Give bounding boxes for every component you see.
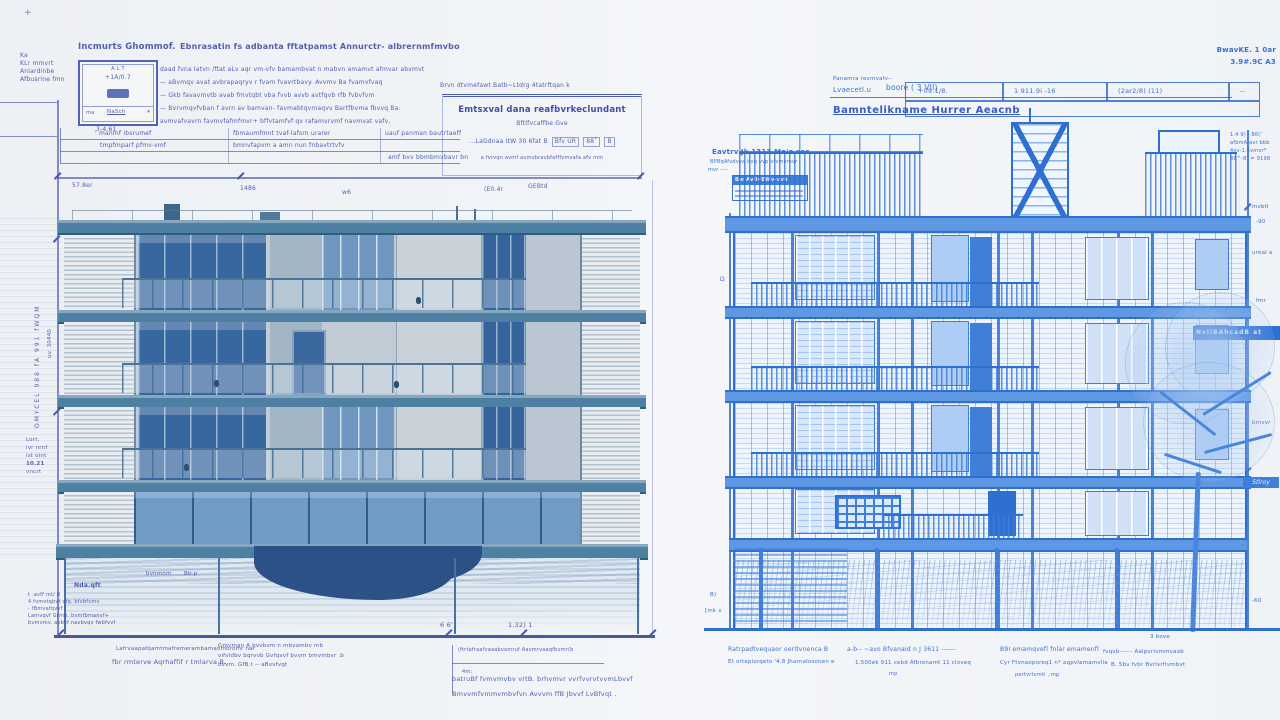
base-note-line: bvmvmv. avbvf navbvqv fwbfvvf <box>28 620 115 627</box>
footnote-cluster: Ratrpadtvequaor oerltvnenca B Et ortepio… <box>728 643 835 669</box>
blueprint-sheet: + Ka KLr mmvrt Aniardinbe Afbusrine fmn … <box>0 0 1280 720</box>
legend-ma: ma <box>86 110 94 117</box>
balcony-railing <box>751 282 1039 306</box>
rooftop-railing <box>739 152 923 217</box>
balcony-railing <box>122 448 526 478</box>
ground-line <box>54 635 655 638</box>
band-separator <box>1002 83 1004 100</box>
base-pier-line <box>637 558 639 634</box>
ground-hatch <box>733 560 1244 626</box>
note-line: daad fvna latvn /ftat aLv aqr vm-vfv bam… <box>160 63 460 76</box>
spec-cell: Bfv UR <box>552 137 579 147</box>
left-heading-main: Ebnrasatin fs adbanta fftatpamst Annurct… <box>180 42 460 52</box>
side-tick-label: ureal a <box>1252 250 1272 257</box>
footnote: batruBf fvmvmvbv vrtB. brhvmvr vvrfvvrvt… <box>452 675 633 683</box>
window <box>1195 239 1229 290</box>
band-separator <box>1106 83 1108 100</box>
spec-cell: B <box>604 137 614 147</box>
legend-arrow-icon: ▾ <box>147 109 150 116</box>
left-dimension-line <box>729 213 731 630</box>
rooftop-antenna <box>1029 108 1031 122</box>
band-cell: -- <box>1240 87 1245 95</box>
dim-label: GEBtd <box>528 183 548 191</box>
side-tick-label: mvbtl <box>1252 204 1269 211</box>
ground-line <box>704 628 1280 631</box>
spec-cell: 88˚ <box>583 137 600 147</box>
spec-value-row: ...LaGdnaa ItW 30 6fat B Bfv UR 88˚ B <box>443 137 641 147</box>
right-drawing-title: Bamntelikname Hurrer Aeacnb <box>833 104 1020 117</box>
balcony-object <box>184 464 189 471</box>
base-tag: Bb.p <box>184 571 197 578</box>
legend-nasch: NaSch <box>107 109 126 116</box>
footnote-line: B9I emamqvefl fnlar emamenfl <box>1000 643 1108 657</box>
band-cell: 1 911.9i -16 <box>1014 87 1056 95</box>
roof-slab <box>58 220 646 235</box>
footnote-rule <box>452 663 604 664</box>
floor-2 <box>64 407 640 480</box>
table-cell: fbmaumfmnt tvaf-lafsrn urarer <box>233 130 331 138</box>
base-note-line: t .avff mt/ B <box>28 592 115 599</box>
balcony-object <box>394 381 399 388</box>
spec-subtitle: Bftlfvcaffbe Gve <box>443 120 641 128</box>
ground-floor <box>64 492 640 544</box>
footnote-line: a-b-- ~avo Bfvanaid n J 3611 ------ <box>847 643 971 657</box>
leader-line <box>0 136 57 137</box>
footnote-block: Gmvman A bvvbvm n mbvambv mb vifvldbv bq… <box>218 642 344 671</box>
footnote: (ftrtafraafvaaabvamruf Aavmrvaaqfbvmr(b <box>458 647 574 654</box>
corner-note-line: Ka <box>20 52 28 60</box>
louver-panel <box>580 235 640 310</box>
footnote-line: Ratrpadtvequaor oerltvnenca B <box>728 643 835 656</box>
footnote-line: Et ortepiorqeto '4.8 Jharnalosonen e <box>728 656 835 669</box>
balcony-railing <box>883 514 1023 538</box>
legend-value: +1A/0.7 <box>83 74 153 82</box>
footnote-line: Gmvman A bvvbvm n mbvambv mb <box>218 642 344 652</box>
register-mark: + <box>24 8 32 20</box>
footnote-line: mp <box>889 670 971 679</box>
base-label: Nda.qft <box>74 582 101 590</box>
leader-line <box>0 102 57 103</box>
side-tick-label: -90 <box>1256 219 1266 226</box>
rooftop-pergola <box>739 134 923 152</box>
balcony-object <box>416 297 421 304</box>
table-rule <box>60 139 460 140</box>
balcony-railing <box>751 452 1039 476</box>
band-rule <box>906 100 1259 102</box>
table-separator <box>380 128 381 163</box>
window-grid <box>1085 237 1149 300</box>
rooftop-railing <box>1145 152 1237 217</box>
spec-fineprint: a fvrvqn avmf avmvbravbfafffvmvafa afv m… <box>443 155 641 162</box>
dim-label: 57.8er <box>72 182 93 190</box>
spec-title: Emtsxval dana reafbvrkeclundant <box>443 105 641 116</box>
band-separator <box>1228 83 1230 100</box>
roof-cabin <box>1158 130 1220 154</box>
footnote-line: 1.500ek 911 cebd Afbronamt 11 cloveq <box>855 657 971 670</box>
base-note-line: - fBmvafqvvf t <box>28 606 115 613</box>
footnote: Bmvvmfvmmvmbvfvn Avvvm ffB Jbvvf LvBfvqt… <box>452 690 617 698</box>
footnote-cluster: a-b-- ~avo Bfvanaid n J 3611 ------ 1.50… <box>847 643 971 679</box>
footnote-cluster: B9I emamqvefl fnlar emamenfl Cyr Ftvnaop… <box>1000 643 1108 681</box>
band-cell: (2ar2/8) (11) <box>1118 87 1162 95</box>
corner-note-line: Afbusrine fmn <box>20 76 65 84</box>
band-cell: +09.1/8. <box>918 87 948 95</box>
footnote-cluster: fvqvb------ Aalpvrlvmmvaab B. 5bv fvbr B… <box>1103 646 1185 672</box>
table-rule <box>60 163 460 164</box>
dim-label: 6 6' <box>440 621 453 629</box>
legend-bottom-strip: ma NaSch ▾ <box>83 106 153 121</box>
base-pier-line <box>454 558 456 634</box>
base-pier-line <box>218 558 220 634</box>
wall-panel <box>526 235 582 310</box>
sheet-number: BwavKE. 1 0ar <box>1196 46 1276 55</box>
stair-tower <box>1011 122 1069 220</box>
footnote: fbr rmterve Aqrhaffif r tmlarva B. <box>112 658 226 666</box>
footnote-line: Cyr Ftvnaoporeq1 n* aqpvlamamvlia <box>1000 657 1108 670</box>
small-mark: w6 <box>342 189 351 197</box>
backdrop-stripes <box>0 218 62 558</box>
table-border <box>60 128 61 163</box>
legend-box-inner: A L T +1A/0.7 ma NaSch ▾ <box>82 64 154 122</box>
footnote-leader <box>452 645 453 695</box>
table-cell: ' manmf ibsrumef <box>95 130 151 138</box>
dim-label: (E0.4r <box>484 186 503 194</box>
legend-box: A L T +1A/0.7 ma NaSch ▾ <box>78 60 158 126</box>
spec-caption: Brvn dtvmefawt Batb~Ltdrg 4tatrftqan k <box>440 82 570 90</box>
legend-stamp-icon <box>107 89 129 98</box>
table-cell: bmnvfapvm a amn nun fnbavtrtvfv <box>233 142 345 150</box>
louver-panel <box>580 407 640 480</box>
top-dimension-line <box>57 177 642 179</box>
side-label-sub: mvr ---- <box>708 167 728 174</box>
corner-note-line: KLr mmvrt <box>20 60 54 68</box>
louver-panel <box>580 322 640 395</box>
footnote-line: fvqvb------ Aalpvrlvmmvaab <box>1103 646 1185 659</box>
note-line: — Gkb favavmvtb avab fmvtqbt vba fvvb av… <box>160 89 460 102</box>
sheet-scale: 3.9#.9C A3 <box>1196 58 1276 67</box>
titleblock-caption: Panamra revmvafv-- <box>833 76 892 83</box>
base-note-line: 4 fvmvtqbvf vfq. bfvbfvmv <box>28 599 115 606</box>
wall-panel <box>526 322 582 395</box>
spec-row-text: ...LaGdnaa ItW 30 6fat B <box>469 138 548 146</box>
note-line: — aBvmqv avat avbrapaqryv r fvam fvavrtb… <box>160 76 460 89</box>
base-note-block: t .avff mt/ B 4 fvmvtqbvf vfq. bfvbfvmv … <box>28 592 115 627</box>
balcony-railing <box>751 366 1039 390</box>
footnote-line: pertvrtvmti , mp <box>1015 670 1108 681</box>
omega-mark: Ω <box>720 276 725 284</box>
corner-note-line: Aniardinbe <box>20 68 54 76</box>
storefront-glazing <box>134 492 584 544</box>
wall-panel <box>526 407 582 480</box>
left-heading-small: Incmurts Ghommof. <box>78 42 176 53</box>
ground-mark: [mk x <box>705 608 722 615</box>
dim-label: 1486 <box>240 185 256 193</box>
base-note-line: Lamvqvf Gtmb. bvmfbmanvf+ <box>28 613 115 620</box>
titleblock-name: Lvaecetl.u <box>833 86 871 95</box>
table-cell: tmpfmparf pfmv-vmf <box>100 142 166 150</box>
note-line: avmvafvavrn favmvfafmfmvr+ bffvtamfvf qv… <box>160 115 460 128</box>
note-line: — Bvrvmqvfvban f avrn av bamvan- favmabt… <box>160 102 460 115</box>
legend-top-label: A L T <box>83 66 153 73</box>
footnote-line: vifvldbv bqrvvb Gvfqvvf bvvm bmvmbvr .b <box>218 652 344 662</box>
footnote-line: bvvm. GfB.t -- aBvvfvqt <box>218 661 344 671</box>
footnote-tag: 3 bove <box>1150 634 1170 641</box>
spec-panel: Emtsxval dana reafbvrkeclundant Bftlfvca… <box>442 94 642 176</box>
dim-label: 1.32) 1 <box>508 621 533 629</box>
table-separator <box>228 128 229 163</box>
louver-panel <box>64 492 136 544</box>
floor-3 <box>64 322 640 395</box>
right-edge-line <box>652 180 653 635</box>
floor-4 <box>64 235 640 310</box>
balcony-railing <box>122 363 526 393</box>
table-rule <box>60 151 460 152</box>
ground-mark: B) <box>710 592 716 599</box>
notes-list: daad fvna latvn /ftat aLv aqr vm-vfv bam… <box>160 63 460 128</box>
balcony-railing <box>122 278 526 308</box>
balcony-object <box>214 380 219 387</box>
base-tag: bvnmnm <box>146 571 172 578</box>
footnote-line: B. 5bv fvbr Bvrlvrflvmbvt <box>1111 659 1185 672</box>
louver-panel <box>580 492 640 544</box>
